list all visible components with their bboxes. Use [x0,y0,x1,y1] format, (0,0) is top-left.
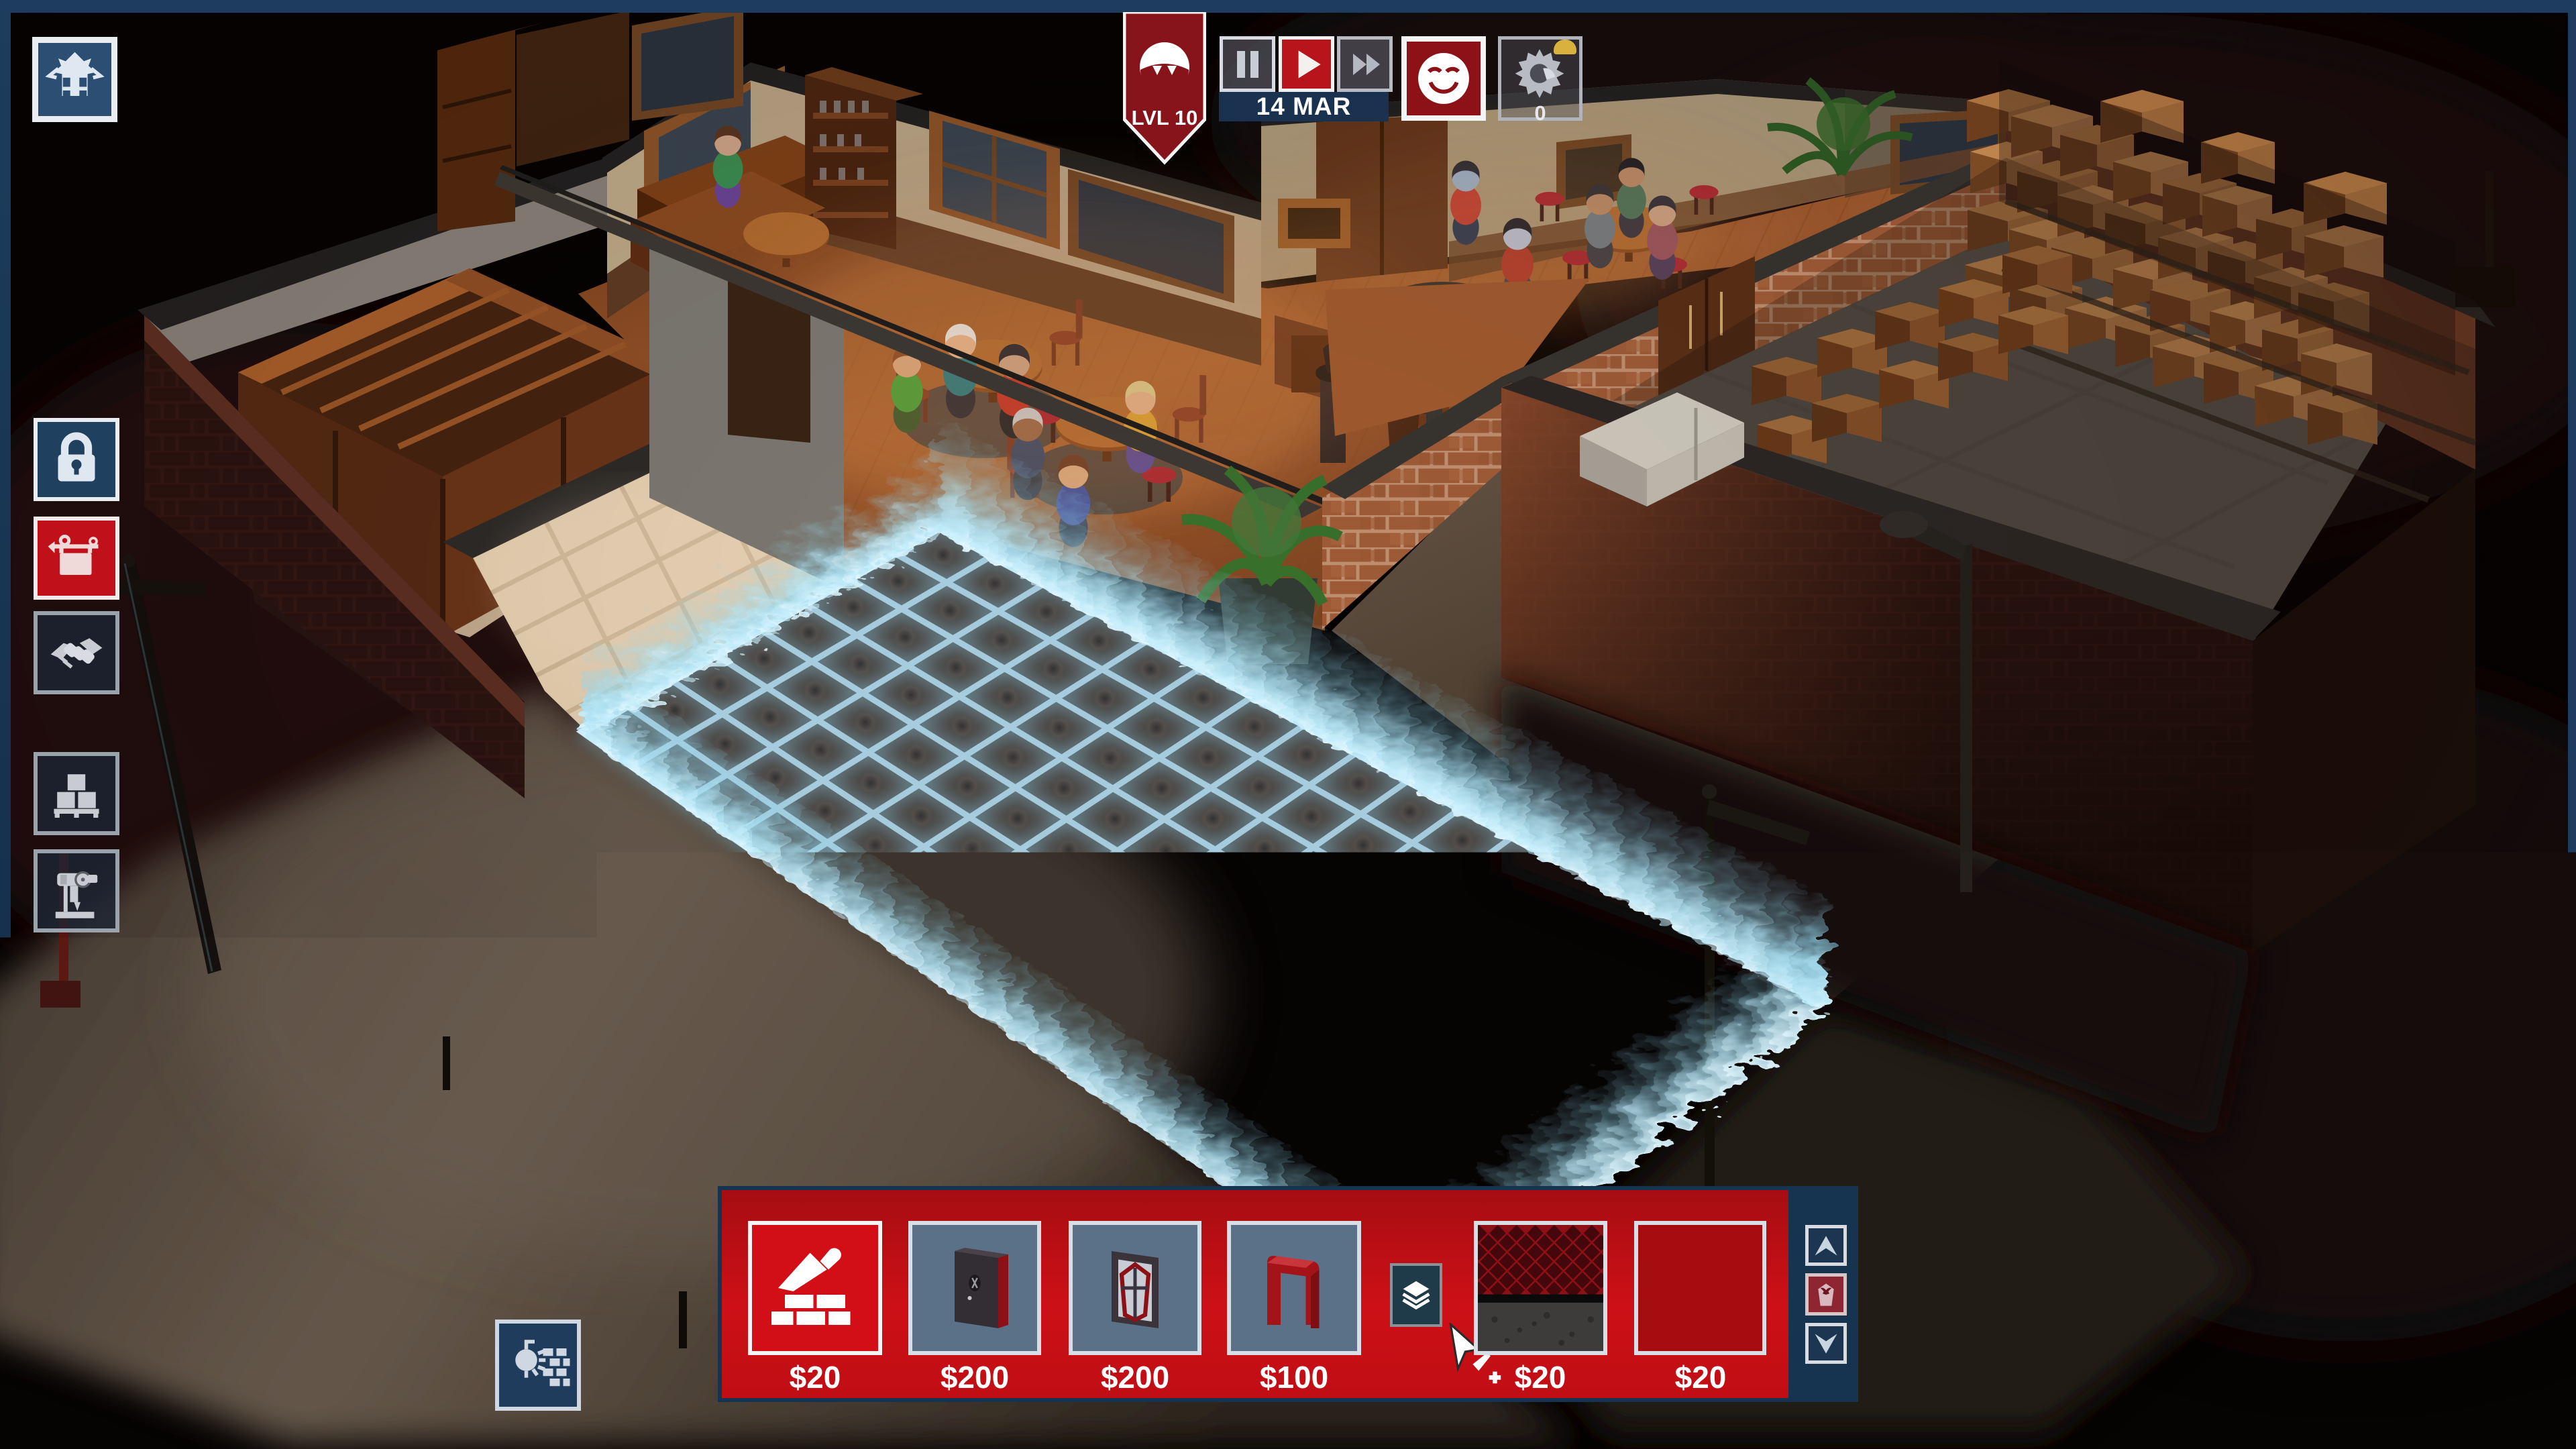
svg-text:LVL 10: LVL 10 [1132,106,1198,129]
